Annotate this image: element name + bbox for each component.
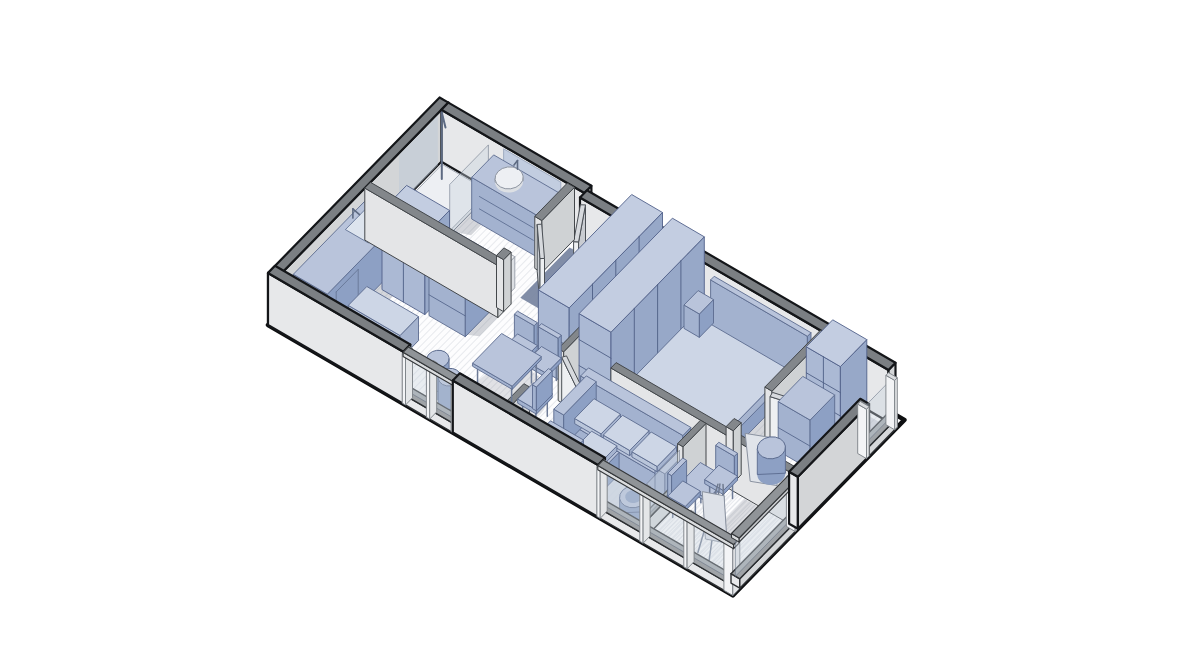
wall-bathroom-east-a xyxy=(497,248,512,312)
floor-plan-figure xyxy=(0,0,1180,663)
floor-plan-canvas xyxy=(0,0,1180,663)
window-post-ne1 xyxy=(858,401,869,458)
window-post-ne2 xyxy=(886,373,897,430)
floor-plan-page xyxy=(0,0,1180,663)
